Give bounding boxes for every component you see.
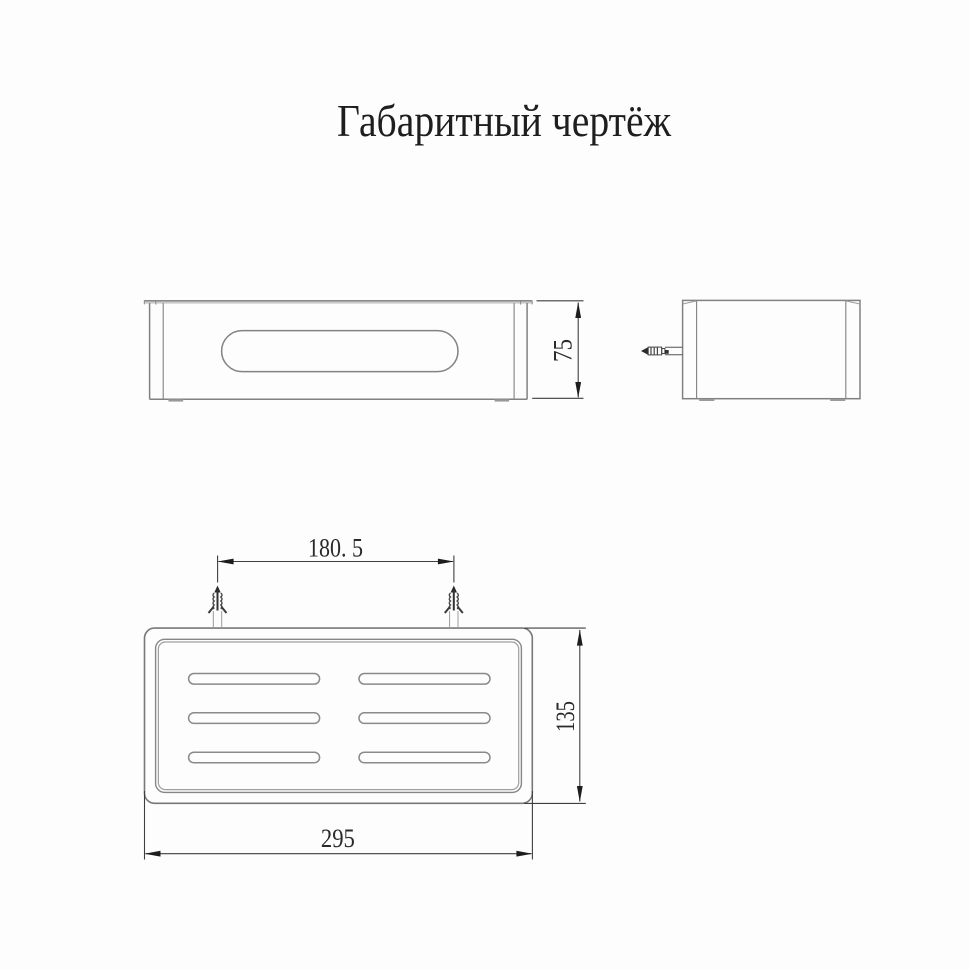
svg-text:Габаритный чертёж: Габаритный чертёж (337, 95, 671, 146)
svg-text:75: 75 (549, 339, 578, 362)
svg-text:135: 135 (551, 701, 580, 732)
svg-text:295: 295 (321, 824, 355, 853)
svg-text:180. 5: 180. 5 (308, 533, 363, 562)
